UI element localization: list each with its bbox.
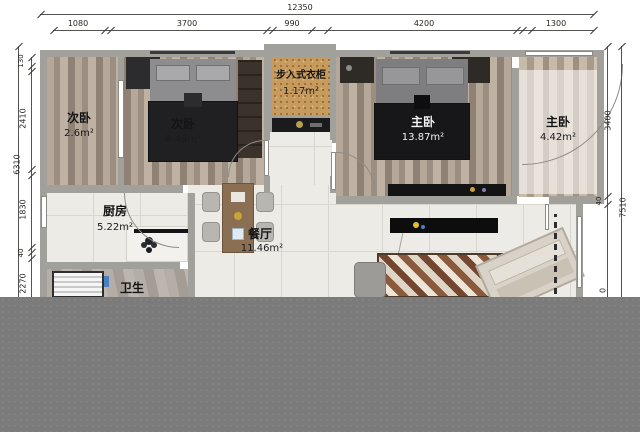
door-leaf-master <box>331 152 336 190</box>
pillow-icon <box>426 67 464 85</box>
bed-secondary <box>148 57 238 162</box>
dining-chair <box>202 192 220 212</box>
room-label-bathroom: 卫生 <box>110 282 154 295</box>
room-area-balcony2: 2.6m² <box>53 128 105 139</box>
dim-tick <box>604 201 612 209</box>
window-top-master <box>390 51 470 54</box>
room-label-balcony2: 次卧 <box>57 112 101 125</box>
dim-tick <box>28 54 36 62</box>
room-area-balcony-master: 4.42m² <box>528 132 588 143</box>
decor-blue-icon <box>482 188 486 192</box>
dim-line-right-total <box>621 46 622 298</box>
room-label-dining: 餐厅 <box>238 228 282 241</box>
dining-chair <box>256 192 274 212</box>
decor-items-icon <box>310 123 322 127</box>
closet-console <box>272 118 330 132</box>
room-label-bedroom2: 次卧 <box>158 118 208 131</box>
dining-chair <box>202 222 220 242</box>
wall-bathroom-right <box>188 262 195 298</box>
curtain-icon <box>554 214 557 294</box>
lamp-icon <box>346 65 352 71</box>
window-living <box>577 216 582 288</box>
dim-right-seg2: 40 <box>595 190 603 212</box>
dim-right-total: 7510 <box>619 186 628 230</box>
dim-tick <box>618 43 626 51</box>
shower-washer <box>52 271 104 298</box>
dim-left-seg2: 2410 <box>19 97 28 141</box>
wall-kitchen-bottom <box>40 262 180 269</box>
tv-console <box>390 218 498 233</box>
bath-accessory-icon <box>104 276 109 287</box>
room-area-master: 13.87m² <box>390 132 456 143</box>
armchair <box>354 262 386 298</box>
wall-top <box>40 50 604 57</box>
floor-plan-canvas: 次卧 2.6m² 次卧 8.49m² 步入式衣柜 1.17m² 主卧 13.87… <box>0 0 640 432</box>
wall-master-balcony-divider <box>512 68 519 196</box>
dim-line-left-segments <box>31 57 32 298</box>
dim-line-top-total <box>40 14 594 15</box>
room-label-balcony-master: 主卧 <box>534 116 582 129</box>
dim-left-seg3: 1830 <box>19 188 28 232</box>
room-area-bedroom2: 8.49m² <box>152 134 214 145</box>
pillow-icon <box>382 67 420 85</box>
pillow-icon <box>196 65 230 81</box>
door-leaf-living <box>545 204 549 230</box>
dim-line-right-segments <box>607 46 608 298</box>
dim-top-seg3: 990 <box>272 19 312 28</box>
window-balcony-divider <box>118 80 124 158</box>
bed-master <box>374 57 470 160</box>
bowl-icon <box>234 212 242 220</box>
dim-tick <box>604 43 612 51</box>
bed-duvet <box>148 101 238 162</box>
floor-corridor <box>268 132 332 193</box>
door-leaf-bedroom2 <box>264 140 269 176</box>
window-kitchen <box>41 196 47 228</box>
bed-tray-icon <box>414 95 430 109</box>
decor-blue-icon <box>421 225 425 229</box>
bed-tray-icon <box>184 93 202 107</box>
wall-kitchen-dining <box>188 193 195 262</box>
room-label-master: 主卧 <box>398 116 448 129</box>
dim-top-seg2: 3700 <box>167 19 207 28</box>
dim-left-seg1: 130 <box>17 47 25 75</box>
room-label-kitchen: 厨房 <box>93 205 137 218</box>
wall-corridor-left-stub <box>264 176 270 193</box>
window-top-bedroom2 <box>150 51 235 54</box>
wall-left <box>40 50 47 298</box>
room-area-kitchen: 5.22m² <box>89 222 141 233</box>
dim-left-total: 6310 <box>13 140 22 190</box>
plate-icon <box>231 192 245 202</box>
pillow-icon <box>156 65 190 81</box>
dim-top-seg5: 1300 <box>536 19 576 28</box>
room-area-closet: 1.17m² <box>276 86 326 97</box>
dim-top-total: 12350 <box>275 3 325 12</box>
window-top-balcony <box>525 51 593 56</box>
wall-kitchen-top <box>40 185 183 193</box>
decor-yellow-icon <box>413 222 419 228</box>
decor-gold-icon <box>470 187 475 192</box>
room-label-closet: 步入式衣柜 <box>270 70 332 81</box>
dim-right-seg1: 3400 <box>604 99 613 143</box>
dim-line-top-segments <box>53 30 594 31</box>
nightstand-left <box>340 57 374 83</box>
bottom-crop-band <box>0 297 640 432</box>
plant-icon <box>296 121 303 128</box>
dim-top-seg1: 1080 <box>58 19 98 28</box>
dim-top-seg4: 4200 <box>404 19 444 28</box>
room-area-dining: 11.46m² <box>232 243 292 254</box>
wall-living-top-left <box>336 196 517 204</box>
